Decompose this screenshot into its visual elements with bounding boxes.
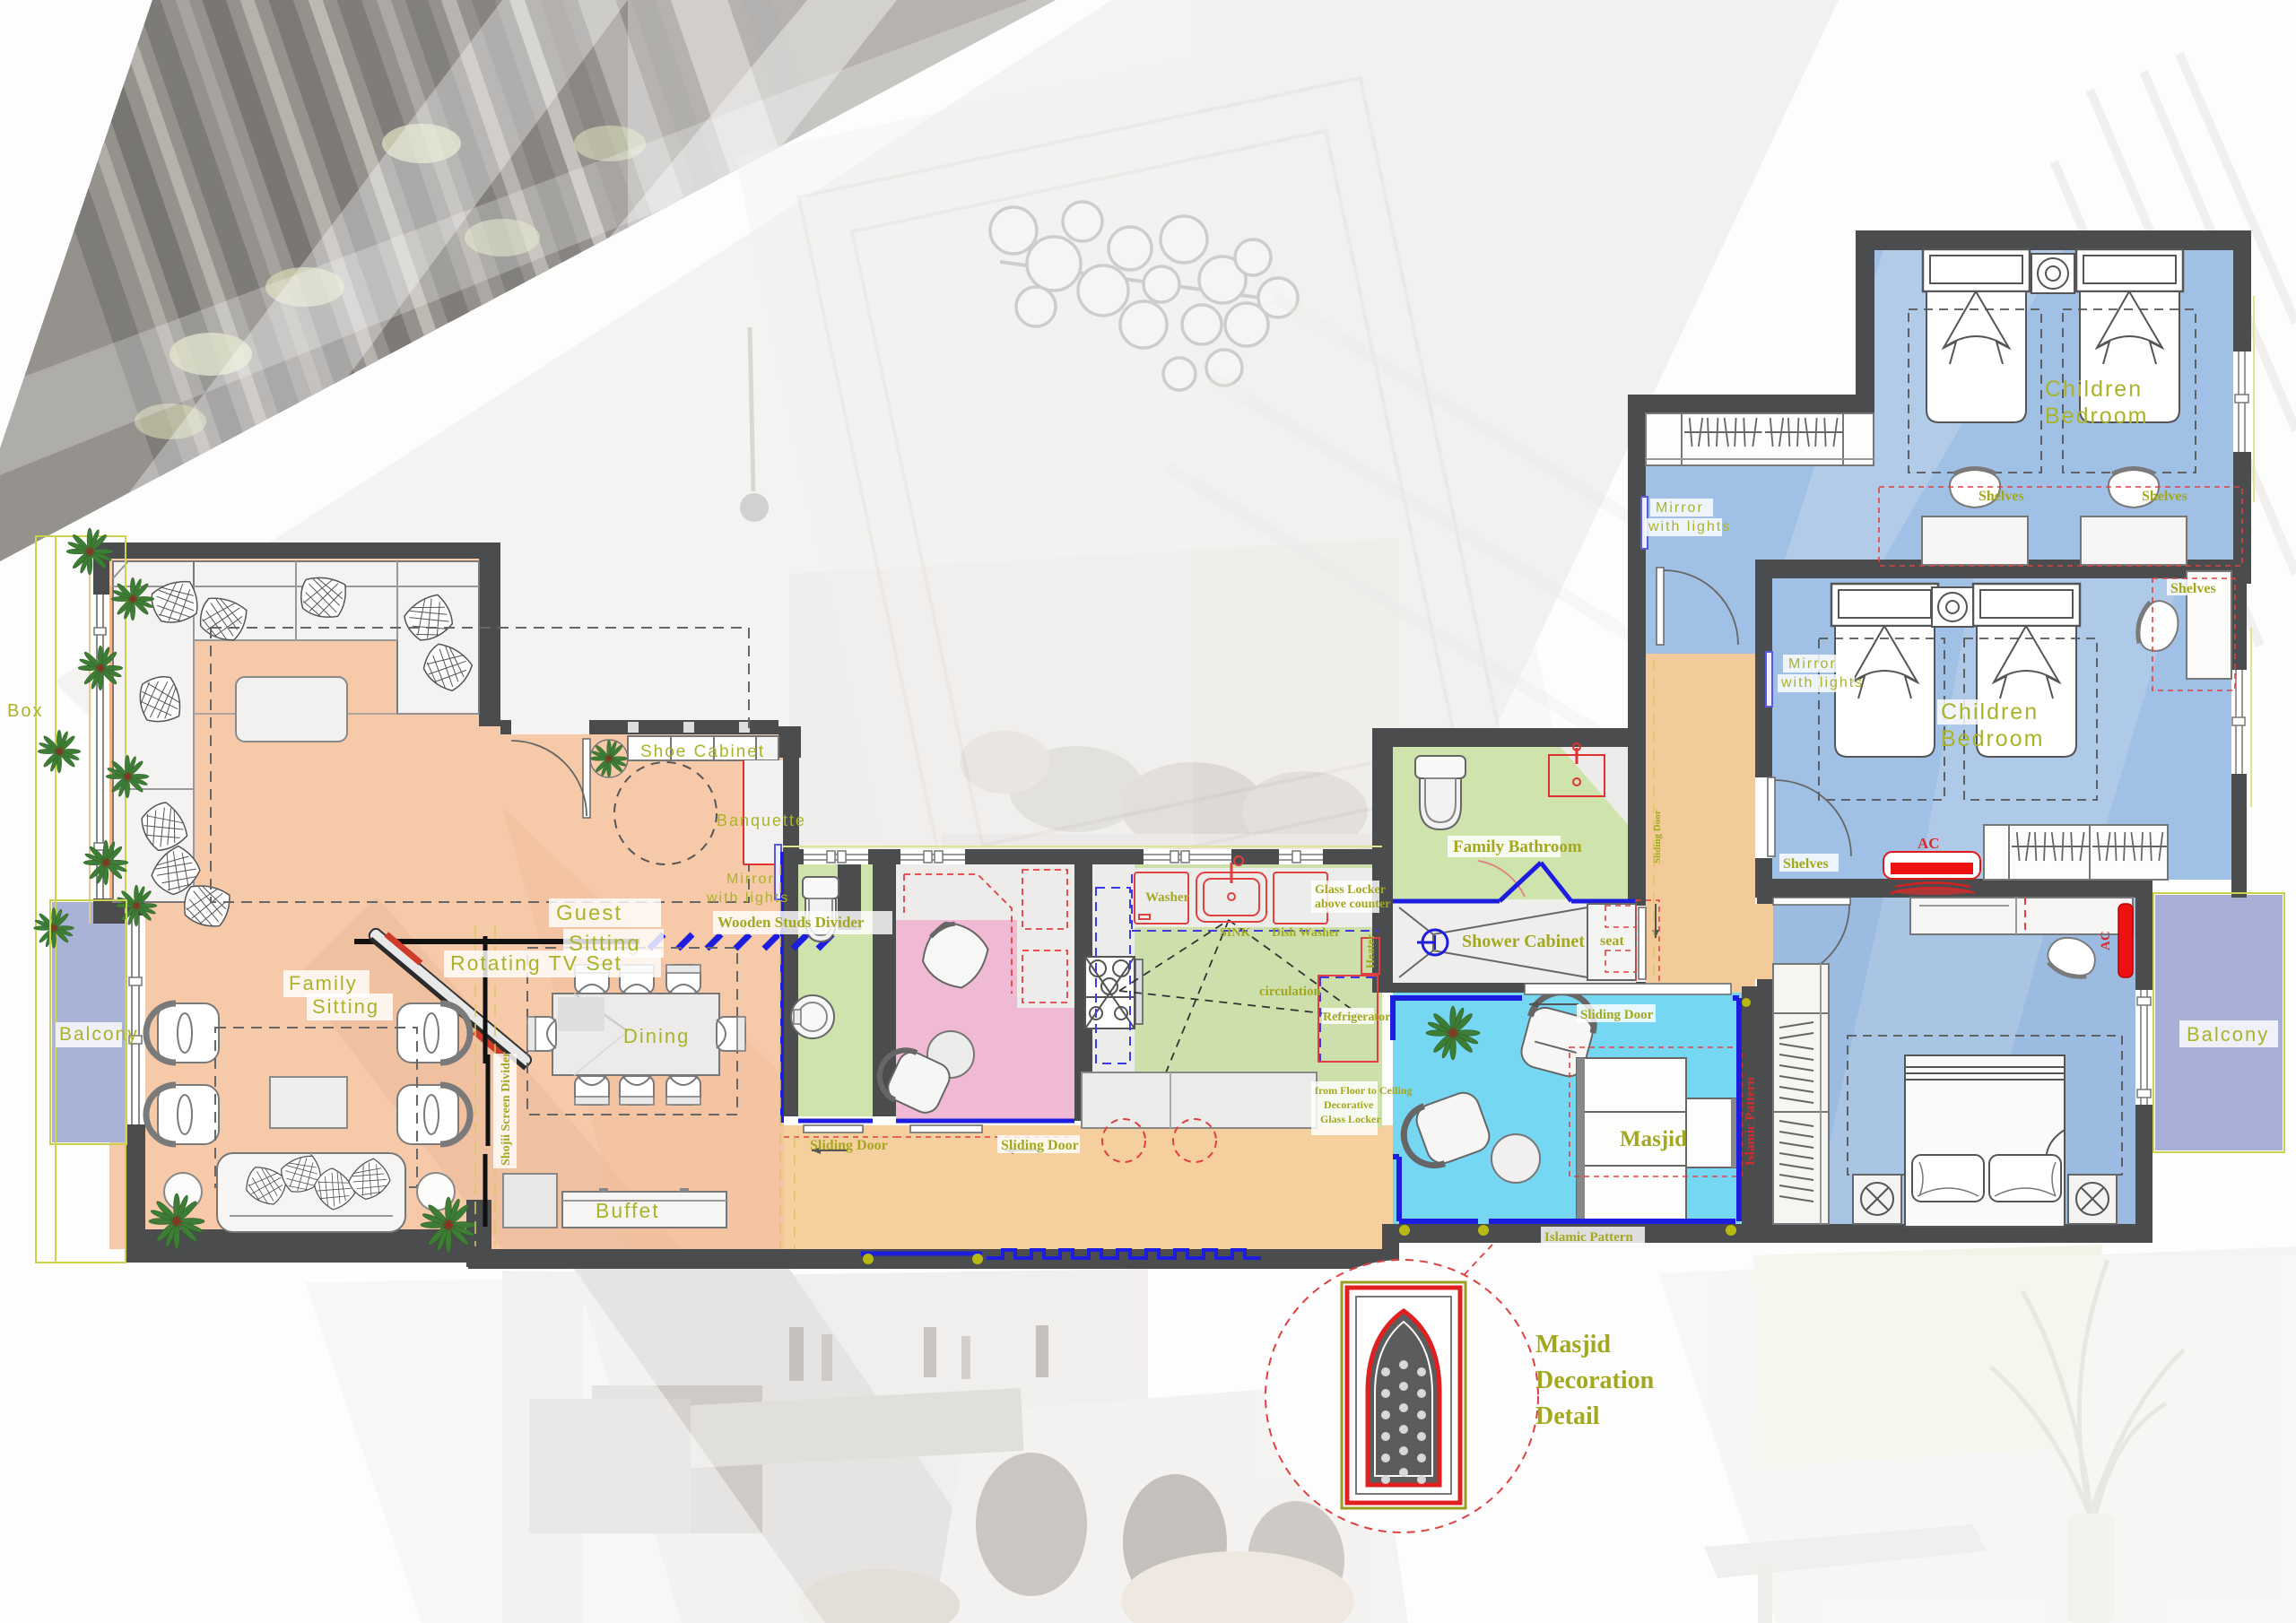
svg-text:Sliding Door: Sliding Door <box>1652 810 1663 864</box>
svg-text:Banquette: Banquette <box>717 811 806 829</box>
svg-text:Sliding Door: Sliding Door <box>1580 1008 1654 1022</box>
svg-text:Balcony: Balcony <box>2187 1023 2269 1046</box>
svg-text:with lights: with lights <box>706 890 789 906</box>
svg-text:Sliding Door: Sliding Door <box>810 1138 888 1153</box>
svg-text:Dish Washer: Dish Washer <box>1272 926 1340 940</box>
svg-text:Shelves: Shelves <box>1979 489 2024 504</box>
svg-text:Heater: Heater <box>1363 934 1377 968</box>
svg-text:Glass Locker: Glass Locker <box>1320 1113 1381 1125</box>
svg-text:Washer: Washer <box>1145 890 1190 905</box>
svg-text:Islamic Pattern: Islamic Pattern <box>1744 1077 1758 1166</box>
svg-text:Glass Locker: Glass Locker <box>1315 883 1386 897</box>
svg-text:Family: Family <box>289 972 358 994</box>
svg-text:Shoe Cabinet: Shoe Cabinet <box>640 742 765 761</box>
svg-text:Rotating TV Set: Rotating TV Set <box>450 951 622 975</box>
svg-text:Shelves: Shelves <box>2170 581 2216 596</box>
svg-text:Children: Children <box>1941 699 2039 725</box>
svg-text:Refrigerator: Refrigerator <box>1323 1011 1390 1024</box>
svg-text:with lights: with lights <box>1780 675 1864 690</box>
svg-text:above counter: above counter <box>1315 898 1390 911</box>
svg-text:Children: Children <box>2045 377 2143 402</box>
svg-text:Shower Cabinet: Shower Cabinet <box>1462 932 1585 951</box>
svg-text:Mirror: Mirror <box>1788 656 1837 672</box>
svg-text:Wooden Studs Divider: Wooden Studs Divider <box>717 914 865 931</box>
svg-text:Dining: Dining <box>623 1025 690 1047</box>
svg-text:Decoration: Decoration <box>1535 1367 1655 1394</box>
svg-text:Shelves: Shelves <box>1783 856 1829 872</box>
svg-text:Shelves: Shelves <box>2142 489 2187 504</box>
svg-text:Guest: Guest <box>556 901 622 925</box>
svg-text:Shojii Screen Divider: Shojii Screen Divider <box>500 1052 513 1166</box>
svg-text:Islamic Pattern: Islamic Pattern <box>1544 1230 1633 1245</box>
svg-text:Mirror: Mirror <box>726 872 775 887</box>
svg-text:Masjid: Masjid <box>1620 1127 1687 1151</box>
svg-text:Mirror: Mirror <box>1656 500 1704 516</box>
svg-text:Bedroom: Bedroom <box>2045 404 2148 429</box>
svg-text:seat: seat <box>1600 933 1624 949</box>
svg-text:from Floor to Ceiling: from Floor to Ceiling <box>1315 1084 1413 1097</box>
svg-text:Buffet: Buffet <box>596 1199 660 1222</box>
svg-text:with lights: with lights <box>1648 519 1731 534</box>
svg-text:SINK: SINK <box>1220 926 1250 940</box>
svg-text:Bedroom: Bedroom <box>1941 726 2044 751</box>
svg-text:Balcony: Balcony <box>59 1024 139 1045</box>
svg-text:Sitting: Sitting <box>312 995 379 1018</box>
svg-text:Box: Box <box>7 701 43 721</box>
svg-text:Decorative: Decorative <box>1324 1098 1374 1111</box>
svg-text:Sliding Door: Sliding Door <box>1001 1138 1079 1153</box>
svg-text:AC: AC <box>1918 835 1940 852</box>
svg-text:circulation: circulation <box>1259 985 1322 999</box>
svg-text:AC: AC <box>2099 931 2113 950</box>
svg-text:Family Bathroom: Family Bathroom <box>1453 838 1582 856</box>
svg-text:Masjid: Masjid <box>1535 1331 1611 1358</box>
svg-text:Detail: Detail <box>1535 1402 1600 1430</box>
